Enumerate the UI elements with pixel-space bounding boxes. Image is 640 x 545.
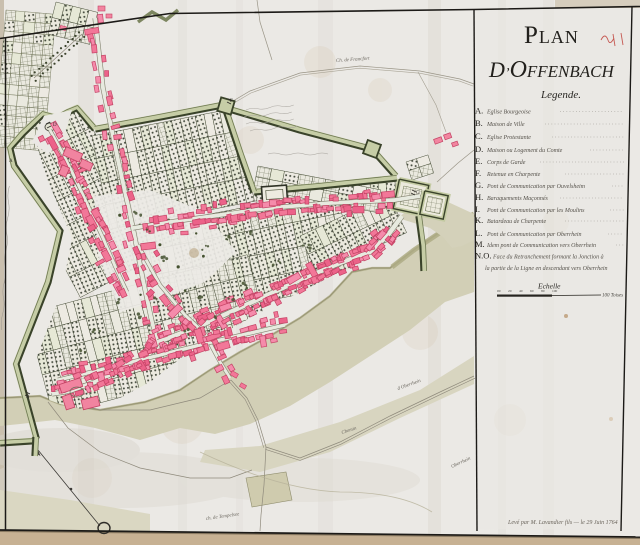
svg-text:Baraquements Maçonnés: Baraquements Maçonnés [487,196,548,202]
svg-text:B.: B. [475,118,483,128]
svg-text:G.: G. [475,180,483,190]
svg-text:Maison de Ville: Maison de Ville [486,122,525,128]
svg-text:40: 40 [519,289,523,293]
svg-text:Corps de Garde: Corps de Garde [487,160,526,166]
svg-text:A.: A. [475,106,483,116]
svg-text:Pont de Communication par les: Pont de Communication par les Moulins [486,208,585,214]
svg-text:Maison ou Logement du Comte: Maison ou Logement du Comte [486,148,563,154]
svg-text:F.: F. [475,168,481,178]
svg-text:Eglise Bourgeoise: Eglise Bourgeoise [486,110,531,116]
svg-text:80: 80 [541,289,545,293]
svg-text:L.: L. [475,228,482,238]
svg-text:20: 20 [508,289,512,293]
svg-text:G: G [416,191,420,196]
svg-text:H.: H. [475,192,483,202]
svg-text:C.: C. [475,131,483,141]
svg-text:Retenue en Charpente: Retenue en Charpente [486,172,541,178]
svg-text:Idem pont de Communication ver: Idem pont de Communication vers Oberrhei… [486,243,596,249]
svg-text:N.O.: N.O. [475,251,492,261]
svg-text:K.: K. [475,215,483,225]
svg-text:60: 60 [530,289,534,293]
svg-text:Pont de Communication par Ober: Pont de Communication par Oberrhein [486,232,582,238]
svg-text:100: 100 [552,289,558,293]
svg-text:F: F [230,99,233,104]
svg-text:Batardeau de Charpente: Batardeau de Charpente [487,219,546,225]
svg-text:D: D [53,123,57,128]
svg-text:Face du Retranchement formant: Face du Retranchement formant la Jonctio… [492,254,604,261]
svg-text:00: 00 [497,289,501,293]
svg-text:A: A [9,159,13,164]
svg-text:la partie de la Ligne en desce: la partie de la Ligne en descendant vers… [485,266,608,272]
svg-text:Levé par M. Lavandier fils — l: Levé par M. Lavandier fils — le 29 Juin … [507,519,618,526]
svg-text:Pont de Communication par Ouve: Pont de Communication par Ouvelsheim [486,184,586,190]
svg-text:PLAN: PLAN [524,22,579,49]
svg-text:E.: E. [475,156,482,166]
svg-text:Eglise Protestante: Eglise Protestante [486,135,531,141]
svg-text:I.: I. [475,204,480,214]
svg-text:100 Toises: 100 Toises [602,294,623,299]
svg-text:D.: D. [475,144,483,154]
svg-text:Legende.: Legende. [540,89,581,101]
svg-text:M.: M. [475,239,485,249]
